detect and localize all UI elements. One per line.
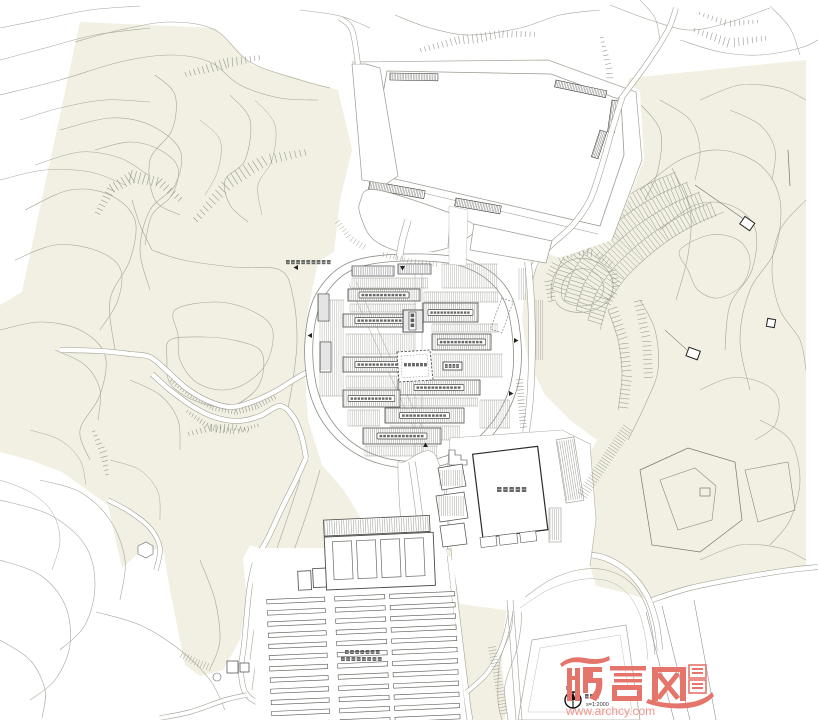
svg-text:www.archcy.com: www.archcy.com	[565, 704, 655, 718]
